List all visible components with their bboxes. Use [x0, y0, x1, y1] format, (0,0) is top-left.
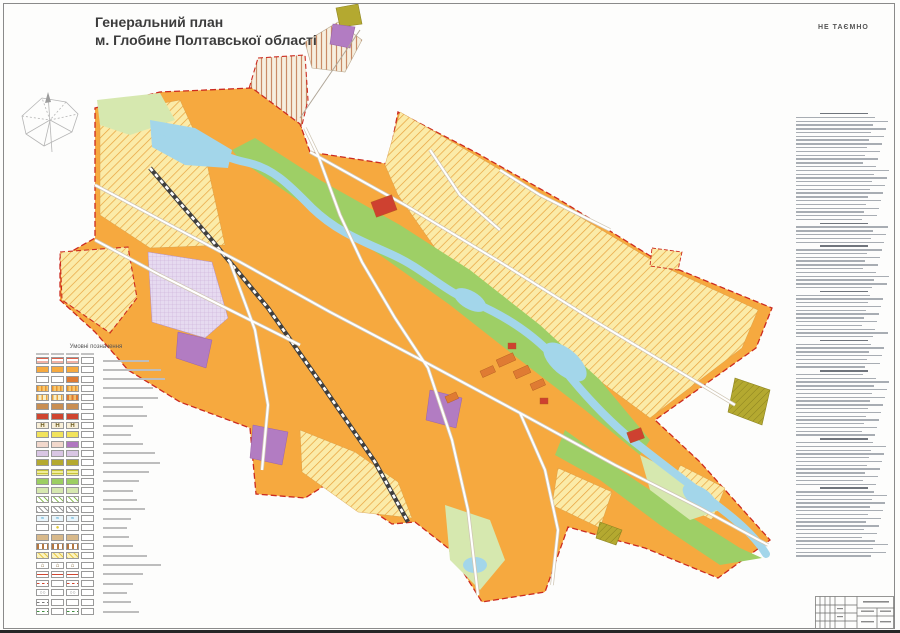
legend-swatch-bld: ⌂: [66, 562, 79, 569]
legend-swatch-lgn: [66, 608, 79, 615]
explication-line: [796, 317, 864, 318]
explication-line: [796, 404, 883, 405]
legend-swatch-e: [81, 562, 94, 569]
legend-row: [36, 608, 188, 615]
explication-line: [796, 151, 880, 152]
secrecy-stamp: НЕ ТАЄМНО: [818, 24, 869, 31]
explication-heading: [820, 340, 868, 341]
legend-swatch-e: [81, 394, 94, 401]
legend-swatch-e: [81, 357, 94, 364]
explication-line: [796, 491, 874, 492]
legend-label: [103, 406, 143, 408]
explication-heading: [820, 438, 868, 439]
explication-line: [796, 325, 862, 326]
legend-swatch-yh: [36, 552, 49, 559]
legend-swatch-gh: [36, 496, 49, 503]
legend-label: [103, 415, 147, 417]
explication-line: [796, 158, 878, 159]
explication-line: [796, 465, 867, 466]
explication-line: [796, 533, 877, 534]
legend-panel: Умовні позначення ННН≈≈≈●⌂⌂⌂○○○○: [36, 344, 188, 617]
legend-row: ⌂⌂⌂: [36, 562, 188, 569]
legend-swatch-yg: [51, 469, 64, 476]
explication-line: [796, 139, 869, 140]
legend-swatch-e: [81, 469, 94, 476]
explication-line: [796, 397, 885, 398]
legend-row: [36, 506, 188, 513]
legend-swatch-e: [81, 506, 94, 513]
legend-swatch-cs: [51, 394, 64, 401]
legend-label: [103, 462, 160, 464]
legend-swatch-y: [66, 431, 79, 438]
explication-line: [796, 389, 887, 390]
explication-line: [796, 128, 886, 129]
explication-line: [796, 283, 887, 284]
explication-line: [796, 295, 870, 296]
legend-swatch-e: [81, 450, 94, 457]
legend-swatch-gy: [36, 506, 49, 513]
legend-swatch-yg: [36, 469, 49, 476]
explication-line: [796, 185, 885, 186]
explication-line: [796, 366, 865, 367]
legend-label: [103, 592, 127, 594]
explication-line: [796, 408, 868, 409]
legend-swatch-w: ≈: [51, 515, 64, 522]
explication-line: [796, 347, 884, 348]
legend-row: [36, 580, 188, 587]
legend-swatch-pu: [66, 441, 79, 448]
legend-row: ●: [36, 524, 188, 531]
legend-swatch-ov: [36, 385, 49, 392]
explication-heading: [820, 370, 868, 371]
legend-swatch-gy: [51, 506, 64, 513]
explication-line: [796, 260, 865, 261]
legend-swatch-li: [51, 450, 64, 457]
legend-swatch-ov: [51, 385, 64, 392]
explication-line: [796, 215, 877, 216]
explication-line: [796, 174, 874, 175]
explication-line: [796, 268, 863, 269]
legend-swatch-e: [81, 413, 94, 420]
explication-line: [796, 302, 868, 303]
explication-heading: [820, 487, 868, 488]
explication-line: [796, 155, 865, 156]
legend-label: [103, 536, 129, 538]
legend-swatch-gy: [66, 506, 79, 513]
legend-swatch-tan: [66, 403, 79, 410]
explication-line: [796, 378, 876, 379]
explication-line: [796, 495, 887, 496]
explication-line: [796, 537, 862, 538]
legend-swatch-e: [81, 524, 94, 531]
explication-line: [796, 310, 866, 311]
legend-swatch-e: [36, 524, 49, 531]
explication-line: [796, 544, 888, 545]
explication-line: [796, 461, 882, 462]
explication-line: [796, 177, 887, 178]
legend-swatch-gh: [66, 496, 79, 503]
legend-swatch-e: [81, 534, 94, 541]
legend-swatch-pk: [51, 441, 64, 448]
title-line-1: Генеральний план: [95, 14, 317, 32]
legend-swatch-y: [51, 431, 64, 438]
explication-line: [796, 510, 883, 511]
explication-line: [796, 431, 862, 432]
legend-swatch-ld: [36, 580, 49, 587]
legend-swatch-e: [66, 599, 79, 606]
explication-line: [796, 170, 889, 171]
explication-line: [796, 442, 873, 443]
legend-label: [103, 601, 131, 603]
legend-swatch-e: [81, 431, 94, 438]
legend-swatch-e: [81, 376, 94, 383]
legend-swatch-yg: [66, 469, 79, 476]
explication-line: [796, 484, 876, 485]
explication-line: [796, 230, 873, 231]
explication-line: [796, 200, 881, 201]
explication-line: [796, 242, 884, 243]
explication-line: [796, 257, 880, 258]
legend-swatch-bs: [36, 543, 49, 550]
legend-label: [103, 499, 137, 501]
legend-row: [36, 496, 188, 503]
explication-heading: [820, 113, 868, 114]
legend-row: [36, 431, 188, 438]
legend-swatch-pg: [36, 487, 49, 494]
explication-line: [796, 446, 886, 447]
legend-swatch-yh: [66, 552, 79, 559]
legend-swatch-lr: [66, 571, 79, 578]
legend-swatch-e: [51, 376, 64, 383]
legend-row: [36, 403, 188, 410]
legend-row: [36, 599, 188, 606]
legend-swatch-bld: ⌂: [51, 562, 64, 569]
explication-line: [796, 117, 875, 118]
explication-line: [796, 434, 875, 435]
legend-swatch-e: [81, 515, 94, 522]
legend-swatch-ol: [51, 459, 64, 466]
explication-line: [796, 329, 875, 330]
legend-swatch-e: [81, 552, 94, 559]
legend-swatch-br: [36, 534, 49, 541]
explication-line: [796, 276, 889, 277]
explication-line: [796, 359, 867, 360]
legend-swatch-rs: [66, 357, 79, 364]
legend-swatch-rs: [36, 357, 49, 364]
explication-line: [796, 363, 880, 364]
legend-row: [36, 459, 188, 466]
legend-swatch-e: [81, 459, 94, 466]
legend-row: ≈≈≈: [36, 515, 188, 522]
legend-label: [103, 545, 133, 547]
legend-swatch-e: [81, 487, 94, 494]
explication-line: [796, 514, 868, 515]
legend-column-headers: [36, 353, 188, 355]
explication-line: [796, 351, 869, 352]
legend-swatch-yc: ●: [51, 524, 64, 531]
legend-swatch-yh: [51, 552, 64, 559]
legend-row: [36, 534, 188, 541]
legend-swatch-e: [81, 571, 94, 578]
legend-row: [36, 487, 188, 494]
legend-row: [36, 385, 188, 392]
explication-heading: [820, 291, 868, 292]
legend-swatch-tx: [66, 376, 79, 383]
explication-line: [796, 453, 884, 454]
legend-swatch-cs: [36, 394, 49, 401]
explication-line: [796, 499, 872, 500]
legend-heading: Умовні позначення: [36, 344, 156, 350]
explication-line: [796, 468, 880, 469]
legend-row: [36, 543, 188, 550]
legend-swatch-lr: [36, 571, 49, 578]
explication-line: [796, 529, 864, 530]
explication-line: [796, 196, 868, 197]
legend-label: [103, 480, 139, 482]
legend-row: ННН: [36, 422, 188, 429]
legend-swatch-e: [51, 599, 64, 606]
legend-row: [36, 571, 188, 578]
explication-line: [796, 412, 881, 413]
explication-line: [796, 272, 876, 273]
legend-swatch-gh: [51, 496, 64, 503]
legend-swatch-ld: [66, 580, 79, 587]
explication-line: [796, 121, 888, 122]
legend-swatch-e: [51, 608, 64, 615]
explication-line: [796, 181, 872, 182]
explication-line: [796, 136, 884, 137]
legend-label: [103, 369, 161, 371]
explication-line: [796, 472, 865, 473]
legend-row: [36, 450, 188, 457]
explication-line: [796, 219, 862, 220]
legend-label: [103, 434, 131, 436]
legend-swatch-e: [81, 496, 94, 503]
general-plan-sheet: Генеральний план м. Глобине Полтавської …: [0, 0, 900, 633]
legend-swatch-rs: [51, 357, 64, 364]
legend-swatch-bld: ⌂: [36, 562, 49, 569]
explication-line: [796, 124, 873, 125]
legend-rows: ННН≈≈≈●⌂⌂⌂○○○○: [36, 357, 188, 615]
legend-swatch-bs: [66, 543, 79, 550]
legend-swatch-y: [36, 431, 49, 438]
explication-line: [796, 313, 879, 314]
explication-line: [796, 548, 873, 549]
legend-label: [103, 387, 153, 389]
legend-swatch-e: [81, 608, 94, 615]
title-line-2: м. Глобине Полтавської області: [95, 32, 317, 50]
legend-label: [103, 583, 133, 585]
explication-line: [796, 423, 864, 424]
explication-line: [796, 192, 883, 193]
legend-swatch-e: [81, 599, 94, 606]
legend-label: [103, 378, 165, 380]
legend-row: [36, 469, 188, 476]
legend-swatch-pk: [36, 441, 49, 448]
legend-row: [36, 441, 188, 448]
explication-line: [796, 226, 888, 227]
legend-swatch-e: [81, 385, 94, 392]
legend-swatch-w: ≈: [36, 515, 49, 522]
explication-line: [796, 208, 879, 209]
legend-swatch-e: [81, 478, 94, 485]
explication-line: [796, 555, 871, 556]
legend-swatch-tan: [51, 403, 64, 410]
legend-swatch-e: [66, 524, 79, 531]
explication-line: [796, 385, 874, 386]
legend-row: [36, 357, 188, 364]
legend-swatch-tan: [36, 403, 49, 410]
legend-label: [103, 490, 133, 492]
legend-swatch-g: [51, 478, 64, 485]
legend-swatch-e: [81, 589, 94, 596]
legend-swatch-g: [66, 478, 79, 485]
legend-swatch-e: [81, 543, 94, 550]
legend-swatch-H: Н: [36, 422, 49, 429]
explication-line: [796, 416, 866, 417]
explication-line: [796, 400, 870, 401]
legend-row: [36, 366, 188, 373]
explication-line: [796, 374, 863, 375]
legend-swatch-ol: [66, 459, 79, 466]
legend-label: [103, 471, 149, 473]
explication-line: [796, 518, 881, 519]
legend-label: [103, 564, 161, 566]
legend-label: [103, 555, 147, 557]
legend-swatch-e: [51, 580, 64, 587]
explication-line: [796, 393, 872, 394]
legend-swatch-br: [51, 534, 64, 541]
legend-swatch-lgn: [36, 608, 49, 615]
legend-row: [36, 394, 188, 401]
legend-swatch-red: [51, 413, 64, 420]
explication-line: [796, 355, 882, 356]
explication-line: [796, 552, 886, 553]
explication-line: [796, 427, 877, 428]
legend-row: ○○○○: [36, 589, 188, 596]
explication-line: [796, 211, 864, 212]
explication-line: [796, 249, 882, 250]
explication-line: [796, 332, 888, 333]
legend-swatch-lco: ○○: [66, 589, 79, 596]
legend-swatch-e: [81, 366, 94, 373]
explication-line: [796, 344, 871, 345]
legend-label: [103, 425, 133, 427]
legend-label: [103, 611, 139, 613]
explication-line: [796, 480, 863, 481]
legend-swatch-li: [36, 450, 49, 457]
legend-swatch-e: [81, 422, 94, 429]
explication-line: [796, 525, 879, 526]
explication-line: [796, 306, 881, 307]
explication-heading: [820, 245, 868, 246]
legend-label: [103, 573, 143, 575]
explication-line: [796, 321, 877, 322]
legend-label: [103, 527, 127, 529]
explication-line: [796, 476, 878, 477]
legend-label: [103, 518, 131, 520]
legend-swatch-ld3: [36, 599, 49, 606]
explication-line: [796, 147, 867, 148]
explication-heading: [820, 223, 868, 224]
legend-swatch-pg: [51, 487, 64, 494]
legend-swatch-o: [36, 366, 49, 373]
explication-line: [796, 381, 889, 382]
legend-label: [103, 397, 158, 399]
legend-row: [36, 478, 188, 485]
explication-line: [796, 143, 882, 144]
explication-line: [796, 234, 886, 235]
explication-line: [796, 162, 863, 163]
legend-swatch-o: [51, 366, 64, 373]
legend-swatch-red: [66, 413, 79, 420]
legend-swatch-w: ≈: [66, 515, 79, 522]
legend-swatch-e: [36, 376, 49, 383]
legend-swatch-ol: [36, 459, 49, 466]
legend-swatch-e: [81, 580, 94, 587]
explication-line: [796, 506, 870, 507]
explication-line: [796, 238, 871, 239]
legend-swatch-g: [36, 478, 49, 485]
page-title: Генеральний план м. Глобине Полтавської …: [95, 14, 317, 49]
explication-line: [796, 540, 875, 541]
explication-line: [796, 336, 873, 337]
legend-swatch-lr: [51, 571, 64, 578]
legend-label: [103, 360, 149, 362]
legend-swatch-e: [51, 589, 64, 596]
legend-swatch-o: [66, 366, 79, 373]
drawing-title-block: [815, 596, 895, 630]
legend-row: [36, 552, 188, 559]
legend-swatch-bs: [51, 543, 64, 550]
legend-swatch-red: [36, 413, 49, 420]
legend-swatch-e: [81, 441, 94, 448]
explication-line: [796, 264, 878, 265]
explication-line: [796, 287, 872, 288]
explication-line: [796, 298, 883, 299]
legend-label: [103, 452, 155, 454]
explication-list: [796, 113, 892, 559]
legend-label: [103, 508, 145, 510]
explication-line: [796, 166, 876, 167]
legend-label: [103, 443, 143, 445]
explication-line: [796, 450, 871, 451]
explication-line: [796, 189, 870, 190]
legend-swatch-br: [66, 534, 79, 541]
explication-line: [796, 502, 885, 503]
explication-line: [796, 253, 867, 254]
legend-swatch-ov: [66, 385, 79, 392]
legend-swatch-pg: [66, 487, 79, 494]
legend-row: [36, 413, 188, 420]
explication-line: [796, 419, 879, 420]
explication-line: [796, 132, 871, 133]
legend-swatch-lco: ○○: [36, 589, 49, 596]
legend-row: [36, 376, 188, 383]
legend-swatch-H: Н: [66, 422, 79, 429]
explication-line: [796, 279, 874, 280]
legend-swatch-li: [66, 450, 79, 457]
legend-swatch-H: Н: [51, 422, 64, 429]
legend-swatch-cs2: [66, 394, 79, 401]
wind-rose-icon: [14, 88, 86, 160]
explication-line: [796, 521, 866, 522]
explication-line: [796, 457, 869, 458]
legend-swatch-e: [81, 403, 94, 410]
explication-line: [796, 204, 866, 205]
